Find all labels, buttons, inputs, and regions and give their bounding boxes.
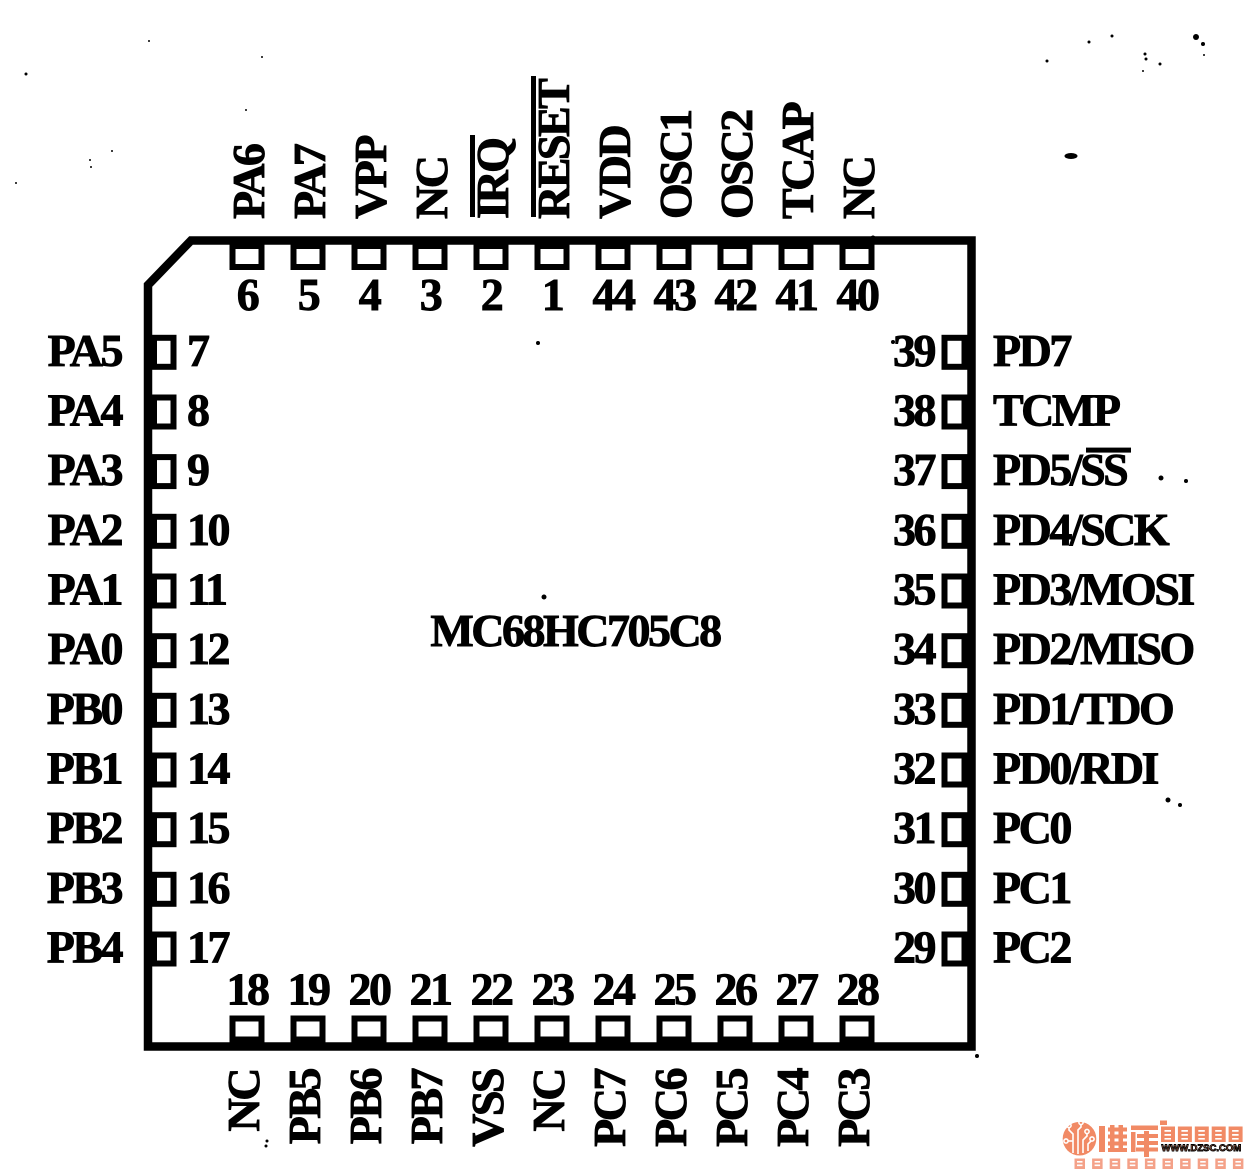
svg-text:WWW.DZSC.COM: WWW.DZSC.COM: [1162, 1143, 1242, 1154]
svg-text:PC4: PC4: [767, 1068, 818, 1147]
svg-text:PD2/MISO: PD2/MISO: [993, 623, 1194, 674]
svg-text:PB4: PB4: [47, 922, 124, 973]
svg-text:35: 35: [893, 564, 936, 615]
svg-text:32: 32: [893, 743, 936, 794]
svg-text:42: 42: [715, 269, 758, 320]
svg-text:3: 3: [420, 269, 442, 320]
svg-text:37: 37: [893, 444, 936, 495]
svg-text:7: 7: [187, 325, 209, 376]
svg-text:PA1: PA1: [48, 564, 122, 615]
svg-text:43: 43: [654, 269, 697, 320]
svg-text:31: 31: [893, 802, 935, 853]
svg-text:TCMP: TCMP: [993, 385, 1120, 436]
svg-text:PC0: PC0: [993, 802, 1071, 853]
svg-text:26: 26: [715, 964, 758, 1015]
svg-text:PC3: PC3: [828, 1069, 879, 1147]
svg-text:VSS: VSS: [462, 1069, 513, 1147]
svg-text:MC68HC705C8: MC68HC705C8: [430, 605, 721, 656]
svg-text:PB7: PB7: [401, 1069, 452, 1145]
svg-text:OSC2: OSC2: [711, 110, 762, 219]
svg-text:28: 28: [837, 964, 880, 1015]
svg-text:18: 18: [227, 964, 270, 1015]
svg-text:16: 16: [187, 862, 230, 913]
svg-text:NC: NC: [406, 158, 457, 219]
svg-text:40: 40: [837, 269, 880, 320]
svg-text:PB3: PB3: [47, 862, 123, 913]
svg-text:PB6: PB6: [340, 1069, 391, 1145]
svg-text:TCAP: TCAP: [772, 102, 823, 219]
svg-text:OSC1: OSC1: [650, 111, 701, 219]
svg-text:39: 39: [893, 325, 936, 376]
svg-text:PD3/MOSI: PD3/MOSI: [993, 564, 1194, 615]
svg-text:8: 8: [187, 385, 209, 436]
svg-text:PA3: PA3: [48, 444, 123, 495]
svg-text:29: 29: [893, 922, 936, 973]
svg-text:PD7: PD7: [993, 325, 1071, 376]
svg-text:33: 33: [893, 683, 936, 734]
svg-text:30: 30: [893, 862, 936, 913]
svg-text:PC5: PC5: [706, 1069, 757, 1147]
svg-text:2: 2: [481, 269, 503, 320]
svg-text:NC: NC: [218, 1070, 269, 1131]
svg-text:PC2: PC2: [993, 922, 1071, 973]
svg-text:NC: NC: [523, 1070, 574, 1131]
svg-text:PD1/TDO: PD1/TDO: [993, 683, 1173, 734]
svg-text:PC1: PC1: [993, 862, 1070, 913]
svg-text:34: 34: [893, 623, 937, 674]
svg-text:36: 36: [893, 504, 936, 555]
svg-text:21: 21: [410, 964, 452, 1015]
svg-text:10: 10: [187, 504, 230, 555]
svg-text:11: 11: [187, 564, 226, 615]
svg-text:PA0: PA0: [48, 623, 123, 674]
svg-text:25: 25: [654, 964, 697, 1015]
svg-text:41: 41: [776, 269, 818, 320]
svg-text:PA7: PA7: [284, 144, 335, 219]
svg-text:VDD: VDD: [589, 127, 640, 219]
svg-text:19: 19: [288, 964, 331, 1015]
svg-text:22: 22: [471, 964, 514, 1015]
svg-text:13: 13: [187, 683, 230, 734]
svg-text:PB5: PB5: [279, 1069, 330, 1145]
svg-text:38: 38: [893, 385, 936, 436]
svg-text:17: 17: [187, 922, 230, 973]
svg-text:PC7: PC7: [584, 1069, 635, 1147]
svg-text:1: 1: [542, 269, 563, 320]
svg-text:14: 14: [187, 743, 231, 794]
svg-text:6: 6: [237, 269, 259, 320]
svg-text:PD0/RDI: PD0/RDI: [993, 743, 1159, 794]
svg-text:44: 44: [593, 269, 637, 320]
svg-text:PD4/SCK: PD4/SCK: [993, 504, 1170, 555]
svg-text:5: 5: [298, 269, 320, 320]
svg-text:15: 15: [187, 802, 230, 853]
svg-text:PA4: PA4: [48, 385, 124, 436]
svg-text:PB0: PB0: [47, 683, 123, 734]
svg-text:PA5: PA5: [48, 325, 123, 376]
svg-text:PB2: PB2: [47, 802, 123, 853]
svg-text:PB1: PB1: [47, 743, 122, 794]
svg-text:NC: NC: [833, 158, 884, 219]
svg-text:24: 24: [593, 964, 637, 1015]
svg-text:12: 12: [187, 623, 230, 674]
svg-text:20: 20: [349, 964, 392, 1015]
svg-text:PC6: PC6: [645, 1069, 696, 1147]
svg-text:9: 9: [187, 444, 209, 495]
svg-text:4: 4: [359, 269, 382, 320]
svg-text:PA2: PA2: [48, 504, 123, 555]
svg-text:PA6: PA6: [223, 144, 274, 219]
svg-text:VPP: VPP: [345, 136, 396, 219]
svg-text:27: 27: [776, 964, 819, 1015]
svg-text:23: 23: [532, 964, 575, 1015]
